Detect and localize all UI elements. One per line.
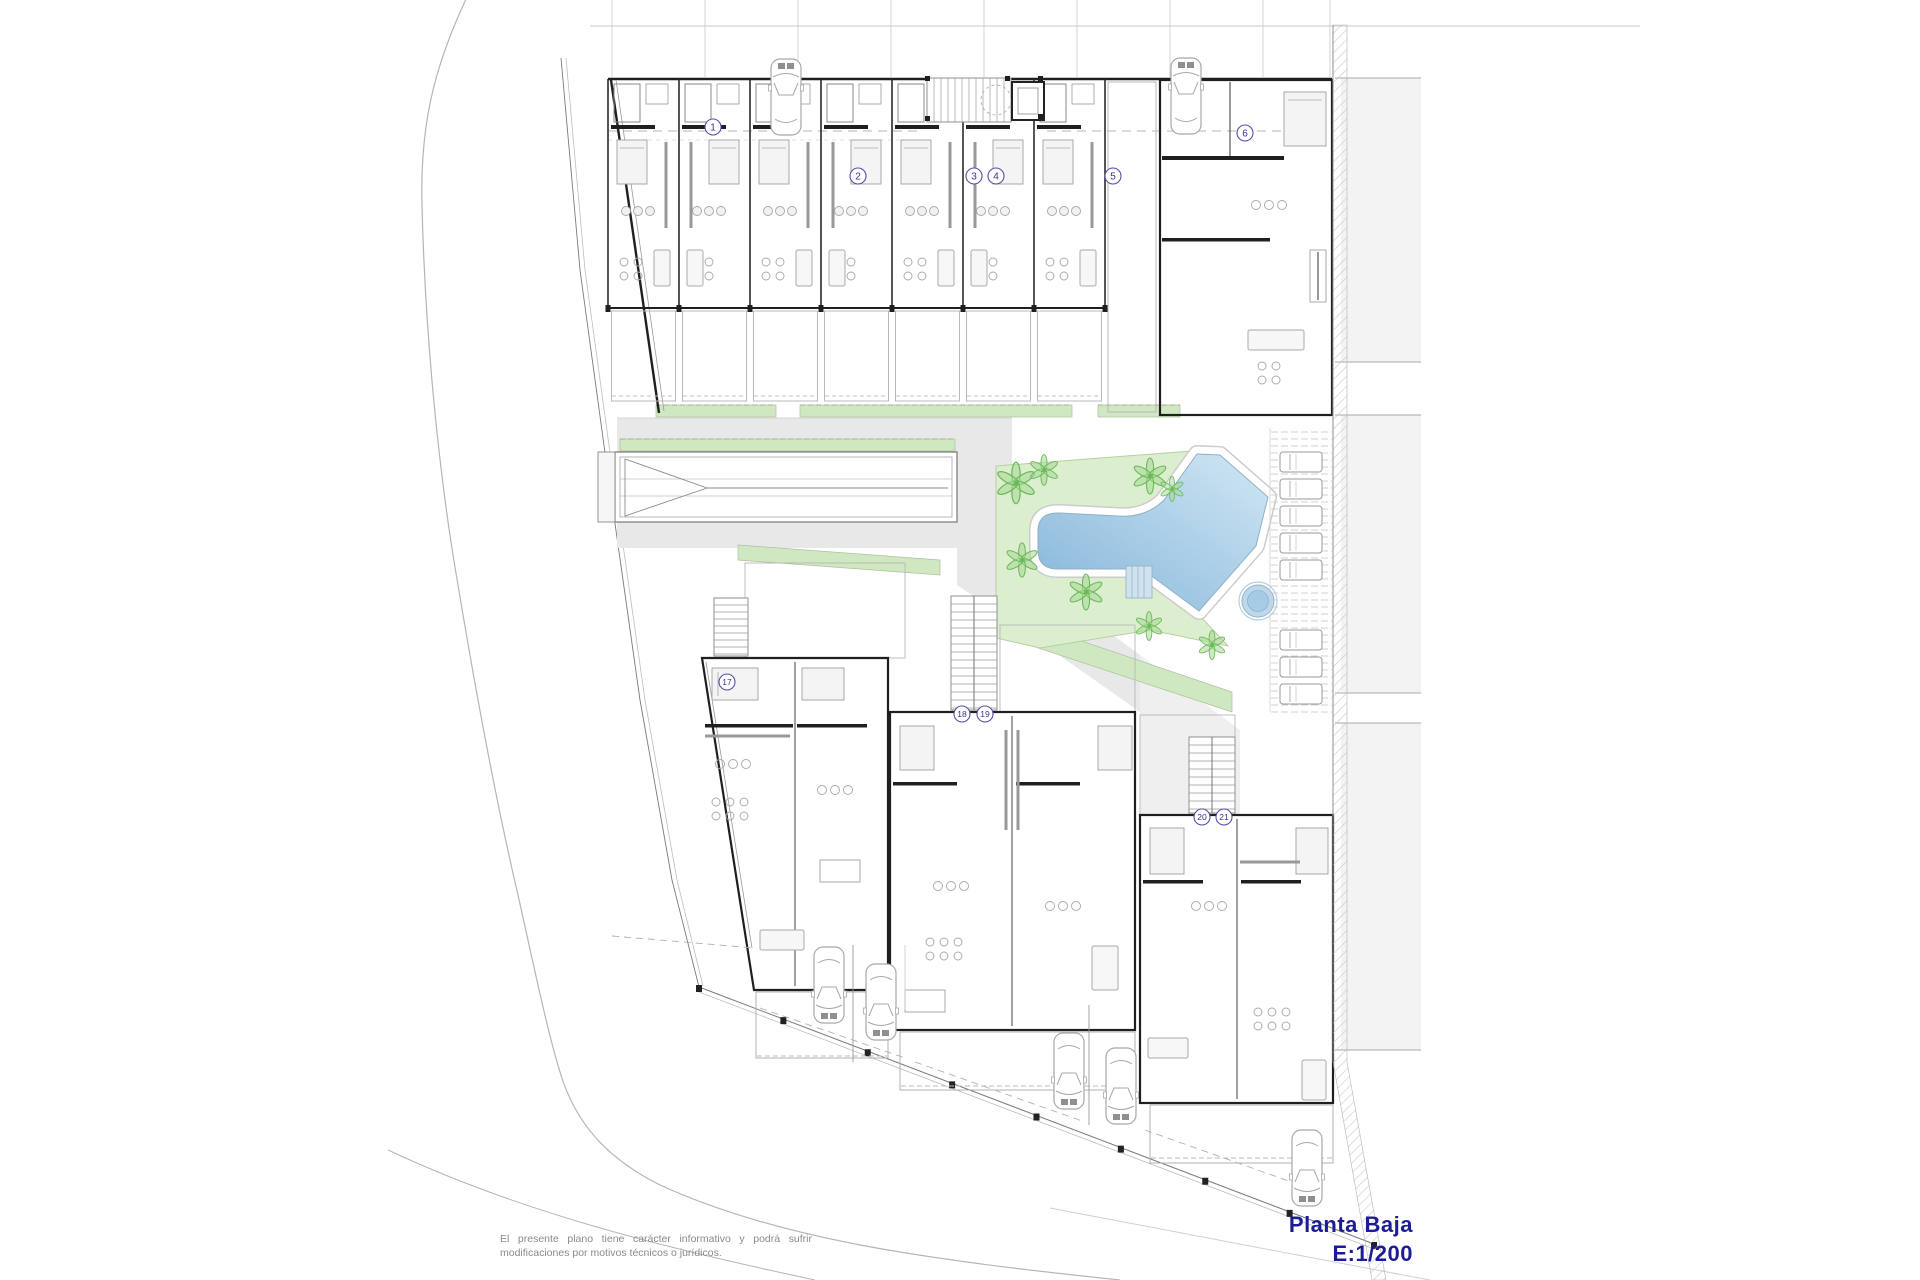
unit-marker: 3 xyxy=(966,168,982,184)
svg-text:17: 17 xyxy=(722,677,732,687)
svg-text:3: 3 xyxy=(971,172,977,183)
car-icon xyxy=(812,947,847,1023)
car-icon xyxy=(1290,1130,1325,1206)
svg-text:4: 4 xyxy=(993,172,999,183)
car-icon xyxy=(1052,1033,1087,1109)
svg-text:18: 18 xyxy=(957,709,967,719)
disclaimer-line-2: modificaciones por motivos técnicos o ju… xyxy=(500,1247,812,1261)
unit-marker: 18 xyxy=(954,706,970,722)
floor-plan-sheet: 1234561718192021 Planta Baja E:1/200 El … xyxy=(0,0,1920,1280)
unit-marker: 6 xyxy=(1237,125,1253,141)
bottom-buildings xyxy=(702,563,1333,1163)
svg-text:20: 20 xyxy=(1197,812,1207,822)
floor-plan-canvas: 1234561718192021 xyxy=(0,0,1920,1280)
unit-marker: 2 xyxy=(850,168,866,184)
svg-text:21: 21 xyxy=(1219,812,1229,822)
disclaimer-note: El presente plano tiene carácter informa… xyxy=(500,1233,812,1260)
car-icon xyxy=(1104,1048,1139,1124)
car-icon xyxy=(864,964,899,1040)
car-icon xyxy=(769,59,804,135)
unit-marker: 1 xyxy=(705,119,721,135)
svg-text:2: 2 xyxy=(855,172,861,183)
disclaimer-line-1: El presente plano tiene carácter informa… xyxy=(500,1233,812,1247)
svg-text:5: 5 xyxy=(1110,172,1116,183)
car-icon xyxy=(1169,58,1204,134)
plan-scale: E:1/200 xyxy=(1113,1239,1413,1268)
svg-text:1: 1 xyxy=(710,123,716,134)
unit-marker: 17 xyxy=(719,674,735,690)
svg-text:19: 19 xyxy=(980,709,990,719)
unit-marker: 4 xyxy=(988,168,1004,184)
unit-marker: 5 xyxy=(1105,168,1121,184)
sun-loungers xyxy=(1280,452,1322,704)
unit-marker: 20 xyxy=(1194,809,1210,825)
plan-title: Planta Baja xyxy=(1113,1210,1413,1239)
unit-marker: 19 xyxy=(977,706,993,722)
unit-marker: 21 xyxy=(1216,809,1232,825)
svg-text:6: 6 xyxy=(1242,129,1248,140)
ramp-building xyxy=(598,452,957,522)
title-block: Planta Baja E:1/200 xyxy=(1113,1210,1413,1268)
